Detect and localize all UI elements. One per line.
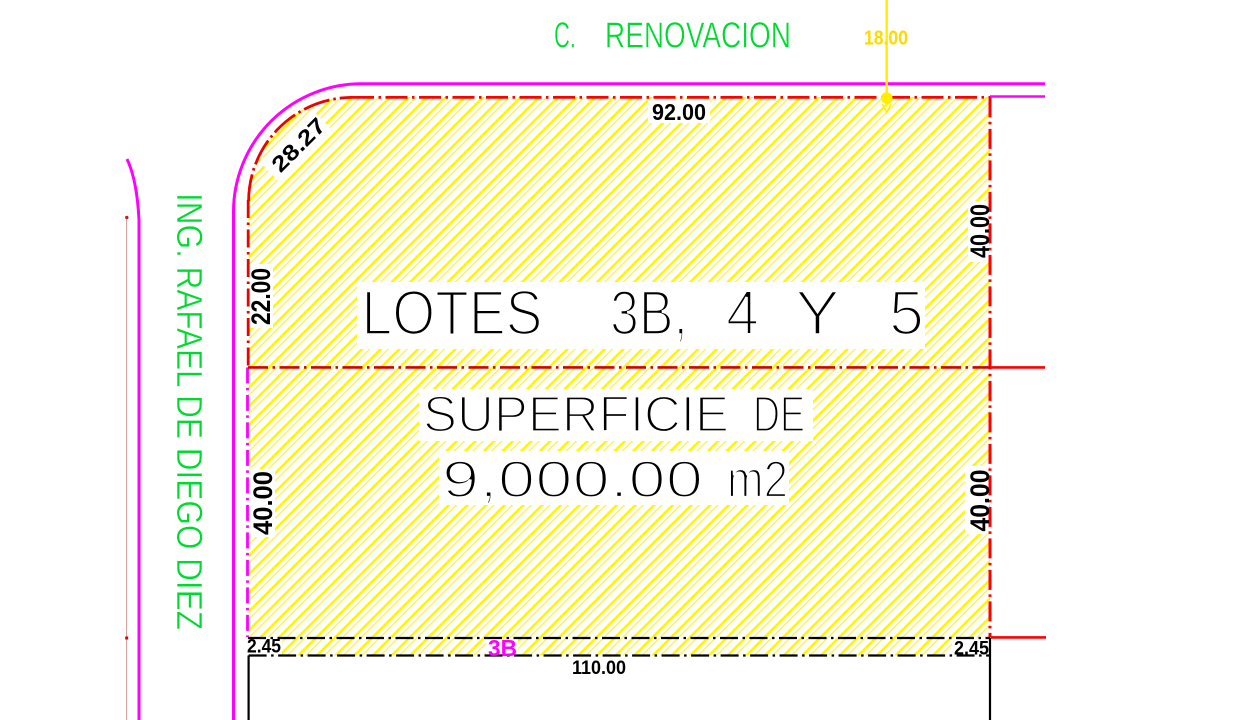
svg-text:5: 5 — [889, 279, 924, 349]
svg-text:SUPERFICIE: SUPERFICIE — [423, 386, 729, 443]
svg-text:2.45: 2.45 — [247, 637, 281, 658]
svg-text:2.45: 2.45 — [954, 639, 989, 660]
svg-text:3B: 3B — [488, 635, 517, 661]
svg-text:LOTES: LOTES — [362, 279, 543, 349]
svg-text:C.: C. — [554, 15, 576, 56]
svg-text:3B,: 3B, — [610, 279, 688, 349]
svg-text:ING. RAFAEL DE DIEGO DIEZ: ING. RAFAEL DE DIEGO DIEZ — [169, 193, 210, 630]
svg-text:40.00: 40.00 — [965, 470, 995, 532]
svg-text:40.00: 40.00 — [248, 471, 278, 535]
svg-text:RENOVACION: RENOVACION — [605, 15, 791, 56]
svg-text:110.00: 110.00 — [572, 658, 626, 679]
svg-text:4: 4 — [726, 279, 759, 349]
svg-text:m2: m2 — [727, 451, 788, 509]
svg-text:DE: DE — [753, 386, 805, 443]
svg-text:18.00: 18.00 — [864, 28, 908, 50]
svg-text:92.00: 92.00 — [652, 99, 706, 125]
svg-text:Y: Y — [795, 279, 840, 349]
svg-text:40.00: 40.00 — [965, 204, 995, 258]
svg-text:22.00: 22.00 — [246, 268, 276, 325]
svg-text:9,000.00: 9,000.00 — [442, 451, 703, 509]
